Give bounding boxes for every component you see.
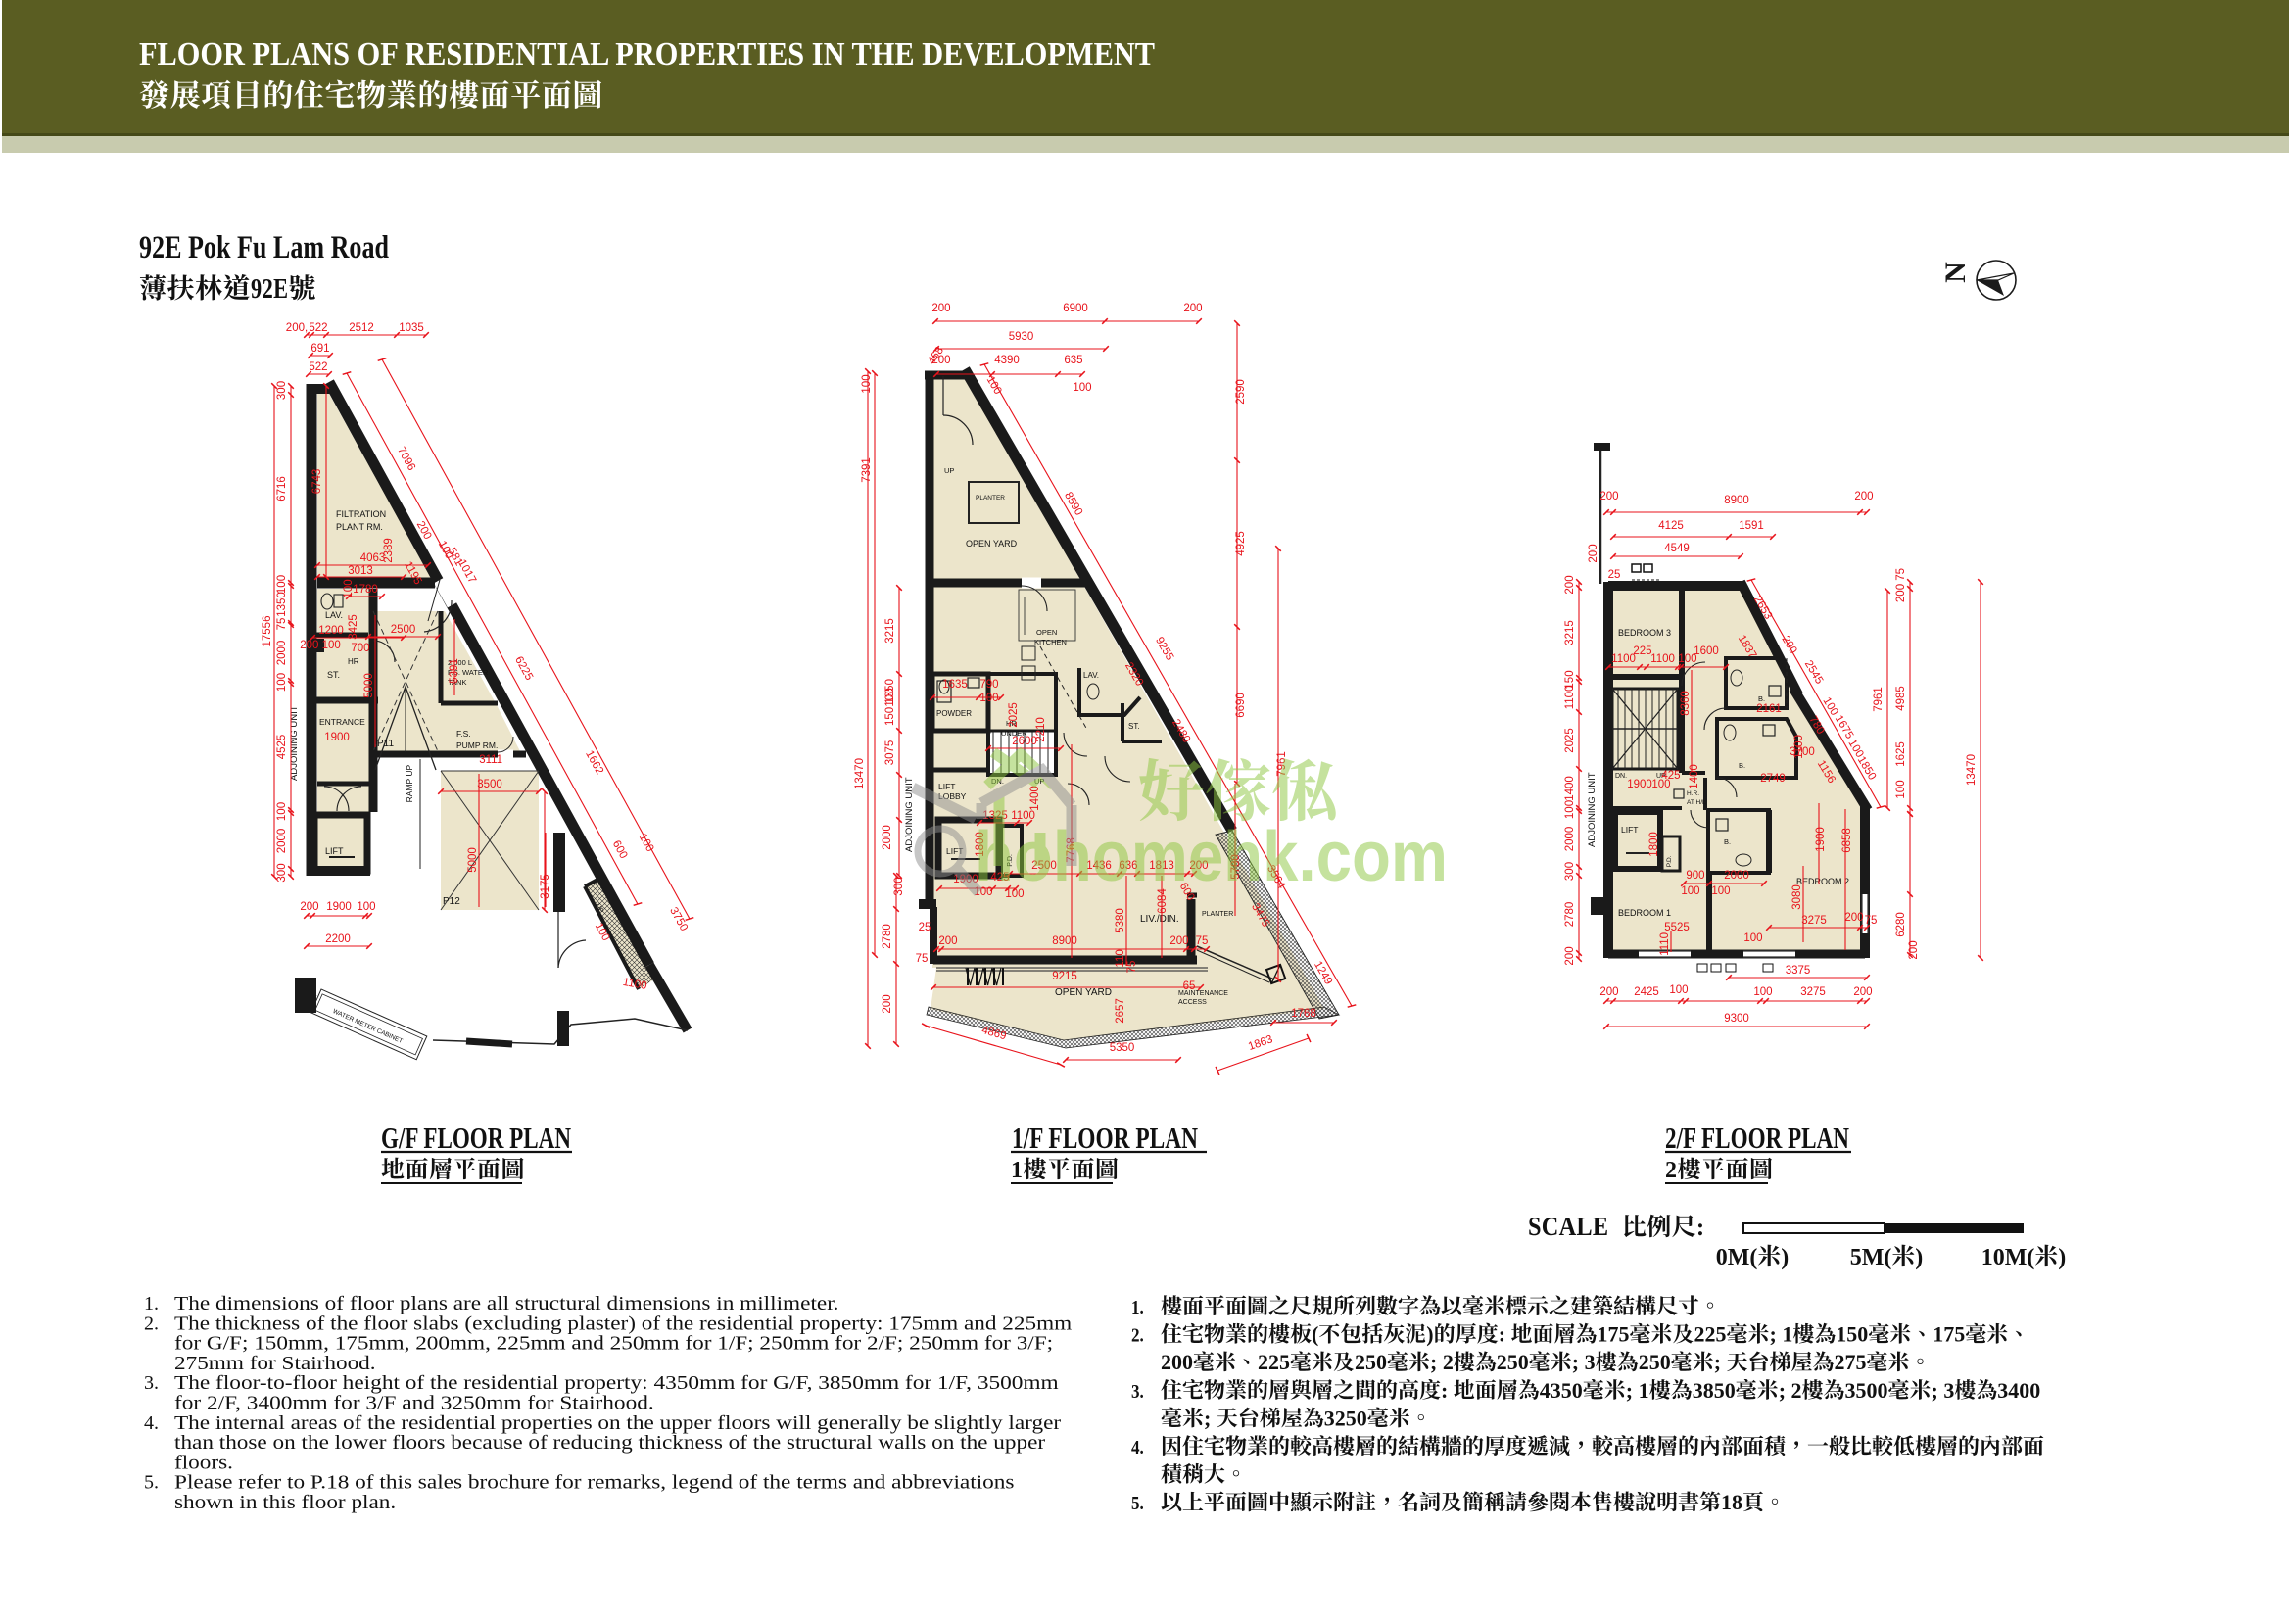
svg-text:N: N: [1939, 262, 1972, 283]
svg-text:3850: 3850: [1693, 1378, 1736, 1403]
svg-text:5.: 5.: [144, 1472, 159, 1494]
svg-text:7391: 7391: [861, 457, 873, 483]
svg-text:175: 175: [1598, 1322, 1630, 1347]
svg-text:300: 300: [276, 863, 288, 882]
svg-text:1900: 1900: [1815, 827, 1827, 852]
svg-text:LIFT: LIFT: [938, 782, 955, 791]
svg-text:200: 200: [1908, 940, 1920, 959]
svg-text:4985: 4985: [1895, 686, 1907, 711]
svg-text:790: 790: [979, 679, 998, 691]
svg-text:POWDER: POWDER: [936, 709, 972, 718]
svg-text:92E Pok Fu Lam Road: 92E Pok Fu Lam Road: [139, 230, 389, 265]
svg-text:25: 25: [1608, 569, 1621, 581]
svg-text:): ): [2058, 1245, 2066, 1270]
svg-text:4.: 4.: [144, 1412, 159, 1434]
svg-text:; 1: ; 1: [1626, 1378, 1649, 1403]
svg-text:1591: 1591: [1739, 520, 1764, 532]
svg-text:100: 100: [1895, 780, 1907, 798]
svg-text:): ): [1915, 1245, 1923, 1270]
svg-text:than those on the lower floors: than those on the lower floors because o…: [174, 1432, 1045, 1454]
svg-text:1200: 1200: [318, 625, 344, 637]
svg-text:2.: 2.: [1131, 1325, 1144, 1347]
svg-text:300: 300: [1564, 862, 1576, 881]
svg-text:100: 100: [979, 693, 998, 704]
svg-text:for G/F; 150mm, 175mm, 200mm,: for G/F; 150mm, 175mm, 200mm, 225mm and …: [174, 1333, 1053, 1355]
svg-text:13470: 13470: [1966, 754, 1978, 786]
svg-text:ENTRANCE: ENTRANCE: [319, 717, 365, 727]
svg-text:4525: 4525: [276, 735, 288, 760]
svg-text:200: 200: [1853, 986, 1872, 998]
svg-text:225: 225: [1694, 1322, 1727, 1347]
svg-text:4549: 4549: [1664, 543, 1690, 554]
svg-text:110: 110: [1115, 949, 1126, 967]
svg-text:1800: 1800: [1648, 832, 1660, 857]
svg-text:275mm for Stairhood.: 275mm for Stairhood.: [174, 1353, 376, 1374]
svg-text:3215: 3215: [884, 618, 896, 644]
svg-text:1/F FLOOR PLAN: 1/F FLOOR PLAN: [1012, 1121, 1198, 1155]
svg-text:18: 18: [1721, 1490, 1742, 1514]
svg-text:2200: 2200: [325, 933, 351, 945]
svg-text:The floor-to-floor height of t: The floor-to-floor height of the residen…: [174, 1372, 1059, 1394]
svg-text:250: 250: [1639, 1350, 1671, 1374]
svg-text:13470: 13470: [854, 758, 866, 789]
svg-text:2025: 2025: [1008, 702, 1020, 728]
svg-text:200: 200: [300, 901, 318, 913]
svg-text:BEDROOM 3: BEDROOM 3: [1618, 628, 1671, 638]
svg-text:1635: 1635: [942, 679, 968, 691]
svg-text:B.: B.: [1758, 694, 1765, 703]
svg-text:75: 75: [916, 953, 929, 965]
svg-text:; 2: ; 2: [1430, 1350, 1454, 1374]
svg-text:3080: 3080: [1791, 884, 1803, 910]
svg-text:1400: 1400: [1564, 776, 1576, 801]
svg-text:The thickness of the floor sla: The thickness of the floor slabs (exclud…: [174, 1313, 1073, 1334]
svg-text:5380: 5380: [1115, 908, 1126, 933]
svg-text:75: 75: [1865, 915, 1878, 927]
svg-text:1900: 1900: [326, 901, 352, 913]
svg-text:1900: 1900: [324, 732, 350, 743]
svg-text:6858: 6858: [1841, 828, 1853, 853]
svg-text:5M(: 5M(: [1850, 1245, 1892, 1270]
svg-text:PLANT RM.: PLANT RM.: [336, 522, 383, 532]
svg-text:2780: 2780: [882, 924, 893, 949]
svg-text:100: 100: [884, 688, 896, 706]
svg-text:200 100: 200 100: [300, 640, 341, 651]
svg-text:92E: 92E: [251, 274, 289, 305]
svg-text:200: 200: [1599, 986, 1618, 998]
svg-text:2.: 2.: [144, 1313, 159, 1334]
svg-text:SCALE: SCALE: [1528, 1212, 1608, 1241]
svg-text:;: ;: [1204, 1406, 1211, 1430]
svg-text:1600: 1600: [1694, 645, 1719, 657]
svg-text:2000: 2000: [276, 829, 288, 854]
svg-text:2000: 2000: [882, 825, 893, 850]
svg-text:LAV.: LAV.: [325, 610, 343, 620]
svg-text:8900: 8900: [1052, 935, 1077, 947]
svg-text:6900: 6900: [1063, 303, 1088, 314]
svg-text:1400: 1400: [1029, 786, 1041, 811]
svg-text:3.: 3.: [144, 1372, 159, 1394]
svg-text:8900: 8900: [1724, 495, 1749, 506]
svg-text:100: 100: [1564, 800, 1576, 819]
svg-text:100: 100: [1711, 885, 1730, 897]
svg-text:1100: 1100: [1650, 653, 1675, 665]
svg-text:3175: 3175: [540, 874, 551, 899]
svg-text::: :: [1696, 1215, 1705, 1241]
svg-text:5930: 5930: [1009, 331, 1034, 343]
svg-text:(: (: [1312, 1322, 1318, 1347]
svg-text:1100: 1100: [1793, 735, 1805, 759]
svg-text:3075: 3075: [884, 740, 896, 766]
svg-text:for 2/F, 3400mm for 3/F and 32: for 2/F, 3400mm for 3/F and 3250mm for S…: [174, 1393, 654, 1414]
svg-text:KITCHEN: KITCHEN: [1034, 638, 1067, 646]
svg-text:1100: 1100: [1611, 653, 1636, 665]
svg-text:OPEN YARD: OPEN YARD: [966, 539, 1018, 549]
svg-text:200: 200: [1169, 935, 1188, 947]
svg-text::: :: [1441, 1378, 1448, 1403]
svg-text:200: 200: [1599, 491, 1618, 502]
svg-text:RAMP UP: RAMP UP: [405, 764, 414, 802]
svg-text:LIV./DIN.: LIV./DIN.: [1140, 914, 1179, 925]
svg-text:2590: 2590: [1235, 379, 1247, 405]
svg-text:275: 275: [1835, 1350, 1867, 1374]
svg-text:UP: UP: [944, 466, 954, 475]
svg-text:1100: 1100: [1564, 686, 1576, 710]
svg-text:691: 691: [310, 343, 329, 355]
svg-text:2161: 2161: [1756, 703, 1782, 715]
svg-text:2512: 2512: [349, 322, 374, 334]
svg-text:1400: 1400: [1689, 764, 1700, 789]
svg-text:100: 100: [861, 374, 873, 393]
svg-text:5350: 5350: [1110, 1042, 1135, 1054]
svg-text:522: 522: [309, 361, 327, 373]
svg-text:1625: 1625: [1895, 741, 1907, 767]
svg-text:2600: 2600: [1012, 736, 1037, 747]
svg-text:3250: 3250: [1324, 1406, 1367, 1430]
svg-text:H.R.: H.R.: [1687, 790, 1699, 797]
svg-text:100: 100: [1743, 932, 1762, 944]
svg-text:PLANTER: PLANTER: [976, 495, 1005, 502]
svg-text:6716: 6716: [276, 476, 288, 502]
svg-text:2749: 2749: [1760, 773, 1786, 785]
svg-text:100: 100: [357, 901, 375, 913]
svg-text:OPEN: OPEN: [1036, 628, 1057, 637]
svg-text:100: 100: [343, 579, 355, 597]
svg-text:HR: HR: [348, 657, 359, 666]
svg-text:6690: 6690: [1235, 693, 1247, 718]
svg-text:200: 200: [882, 994, 893, 1013]
svg-text:100: 100: [1073, 382, 1091, 394]
svg-text:): ): [1426, 1322, 1433, 1347]
svg-text:BEDROOM 2: BEDROOM 2: [1796, 877, 1849, 886]
svg-text:5525: 5525: [1664, 922, 1690, 933]
svg-text:9215: 9215: [1052, 971, 1077, 982]
svg-text:17556: 17556: [262, 616, 273, 647]
svg-text:3425: 3425: [348, 614, 359, 640]
svg-text:shown in this floor plan.: shown in this floor plan.: [174, 1492, 396, 1513]
svg-text:7961: 7961: [1873, 687, 1885, 712]
svg-text:200: 200: [1588, 544, 1599, 562]
svg-text:100: 100: [1753, 986, 1772, 998]
svg-text:25: 25: [919, 922, 931, 933]
svg-text:3013: 3013: [348, 565, 373, 577]
svg-text:900: 900: [1686, 870, 1704, 882]
svg-text:P11: P11: [377, 739, 394, 749]
svg-text:100: 100: [276, 802, 288, 821]
svg-text:1035: 1035: [399, 322, 424, 334]
svg-text:1.: 1.: [144, 1293, 159, 1314]
svg-text:;: ;: [1714, 1350, 1721, 1374]
svg-text:B.: B.: [1724, 837, 1731, 846]
svg-text:FILTRATION: FILTRATION: [336, 509, 386, 519]
svg-text:2000: 2000: [1724, 870, 1749, 882]
svg-text:250: 250: [1355, 1350, 1387, 1374]
svg-text:4.: 4.: [1131, 1437, 1144, 1458]
svg-text:9300: 9300: [1724, 1013, 1749, 1025]
svg-text:; 2: ; 2: [1779, 1378, 1802, 1403]
svg-text:1780: 1780: [353, 584, 378, 596]
svg-text:5000: 5000: [363, 673, 375, 698]
svg-text:BEDROOM 1: BEDROOM 1: [1618, 908, 1671, 918]
svg-text::: :: [1499, 1322, 1505, 1347]
svg-text:ADJOINING UNIT: ADJOINING UNIT: [1587, 772, 1598, 847]
svg-text:200,: 200,: [286, 322, 308, 334]
svg-text:floors.: floors.: [174, 1452, 233, 1473]
svg-text:635: 635: [1064, 355, 1082, 366]
svg-text:3.: 3.: [1131, 1381, 1144, 1403]
svg-text:hohomehk.com: hohomehk.com: [975, 818, 1448, 896]
svg-text:1.: 1.: [1131, 1297, 1144, 1318]
svg-text:200: 200: [931, 303, 950, 314]
svg-text:2025: 2025: [1564, 728, 1576, 753]
svg-text:3500: 3500: [477, 779, 502, 790]
svg-text:100: 100: [1669, 984, 1688, 996]
svg-text:700: 700: [351, 643, 369, 654]
svg-text:5000: 5000: [467, 847, 479, 873]
svg-text:200: 200: [1854, 491, 1873, 502]
svg-text:4390: 4390: [994, 355, 1020, 366]
svg-text:FLOOR PLANS OF RESIDENTIAL PRO: FLOOR PLANS OF RESIDENTIAL PROPERTIES IN…: [139, 36, 1155, 72]
svg-text:4125: 4125: [1658, 520, 1684, 532]
svg-text:150: 150: [1836, 1322, 1868, 1347]
svg-text:225: 225: [1633, 645, 1651, 657]
svg-text:200 75: 200 75: [1895, 568, 1907, 602]
svg-text:LAV.: LAV.: [1083, 671, 1099, 680]
svg-text:The internal areas of the resi: The internal areas of the residential pr…: [174, 1412, 1061, 1434]
svg-text:P12: P12: [443, 896, 460, 907]
svg-text:LIFT: LIFT: [325, 846, 344, 856]
svg-text:175: 175: [1933, 1322, 1965, 1347]
svg-text:Please refer to P.18 of this s: Please refer to P.18 of this sales broch…: [174, 1472, 1015, 1494]
svg-text:8360: 8360: [1680, 691, 1692, 716]
svg-text:F.S.: F.S.: [456, 729, 471, 739]
svg-text:0M(: 0M(: [1716, 1245, 1758, 1270]
svg-text:2000: 2000: [276, 641, 288, 666]
svg-text:1768: 1768: [1291, 1008, 1316, 1020]
svg-text:; 1: ; 1: [1770, 1322, 1793, 1347]
svg-text:B.: B.: [1739, 761, 1745, 770]
svg-text:1350: 1350: [276, 592, 288, 617]
svg-text:300: 300: [893, 877, 905, 895]
svg-text:PLANTER: PLANTER: [1202, 911, 1233, 918]
svg-text:4063: 4063: [360, 552, 386, 564]
svg-text:6743: 6743: [311, 469, 323, 495]
svg-text:200: 200: [1844, 912, 1863, 924]
svg-text:3375: 3375: [1786, 965, 1811, 977]
svg-text:5.: 5.: [1131, 1493, 1144, 1514]
svg-text:6280: 6280: [1895, 912, 1907, 937]
svg-text:10M(: 10M(: [1981, 1245, 2035, 1270]
svg-text:75: 75: [276, 618, 288, 631]
svg-text:2780: 2780: [1564, 902, 1576, 928]
svg-text:3275: 3275: [1801, 915, 1827, 927]
svg-text:200: 200: [1564, 946, 1576, 965]
svg-text:225: 225: [1258, 1350, 1290, 1374]
svg-text:3400: 3400: [1997, 1378, 2040, 1403]
svg-text:LIFT: LIFT: [1621, 825, 1638, 835]
svg-text:75: 75: [1126, 961, 1138, 974]
svg-text:ST.: ST.: [1128, 722, 1140, 731]
svg-text:2389: 2389: [383, 538, 395, 563]
svg-text:3500: 3500: [1845, 1378, 1888, 1403]
svg-text:200: 200: [1161, 1350, 1193, 1374]
svg-text:DN.: DN.: [1615, 773, 1627, 780]
svg-text:100: 100: [276, 575, 288, 594]
svg-text:2/F FLOOR PLAN: 2/F FLOOR PLAN: [1665, 1121, 1849, 1155]
svg-text:1900: 1900: [1627, 779, 1652, 790]
svg-text:522: 522: [309, 322, 327, 334]
svg-text:2000: 2000: [1564, 827, 1576, 852]
svg-text:2210: 2210: [1035, 717, 1047, 742]
svg-text:200: 200: [938, 935, 957, 947]
svg-text:100: 100: [1651, 779, 1670, 790]
svg-text:3275: 3275: [1800, 986, 1826, 998]
svg-text:P.D.: P.D.: [1666, 855, 1673, 867]
svg-text:2657: 2657: [1115, 998, 1126, 1024]
svg-text:OPEN YARD: OPEN YARD: [1055, 987, 1112, 998]
svg-text:1: 1: [1011, 1158, 1024, 1183]
svg-text:PUMP RM.: PUMP RM.: [456, 740, 498, 750]
svg-text:2500: 2500: [391, 624, 416, 636]
svg-text:1110: 1110: [1659, 932, 1671, 956]
svg-text:100: 100: [1681, 885, 1699, 897]
svg-text:2: 2: [1665, 1158, 1678, 1183]
svg-text:4350: 4350: [1540, 1378, 1583, 1403]
svg-text:2425: 2425: [1634, 986, 1659, 998]
svg-text:): ): [1781, 1245, 1789, 1270]
svg-text:300: 300: [276, 381, 288, 400]
svg-text:ACCESS: ACCESS: [1178, 999, 1207, 1006]
svg-text:200: 200: [1564, 575, 1576, 594]
svg-text:65: 65: [1183, 980, 1196, 992]
svg-text:AT H/L: AT H/L: [1687, 799, 1706, 806]
svg-text:3215: 3215: [1564, 620, 1576, 645]
svg-text:; 3: ; 3: [1572, 1350, 1596, 1374]
svg-text:250: 250: [1497, 1350, 1529, 1374]
svg-text:The dimensions of floor plans: The dimensions of floor plans are all st…: [174, 1293, 839, 1314]
svg-text:ST.: ST.: [327, 670, 340, 680]
svg-text:100: 100: [276, 673, 288, 692]
svg-text:3111: 3111: [479, 754, 502, 766]
svg-text:200: 200: [1183, 303, 1202, 314]
svg-text:; 3: ; 3: [1932, 1378, 1955, 1403]
svg-text:75: 75: [1196, 935, 1209, 947]
svg-text:G/F FLOOR PLAN: G/F FLOOR PLAN: [381, 1121, 571, 1155]
svg-text:4925: 4925: [1235, 531, 1247, 556]
